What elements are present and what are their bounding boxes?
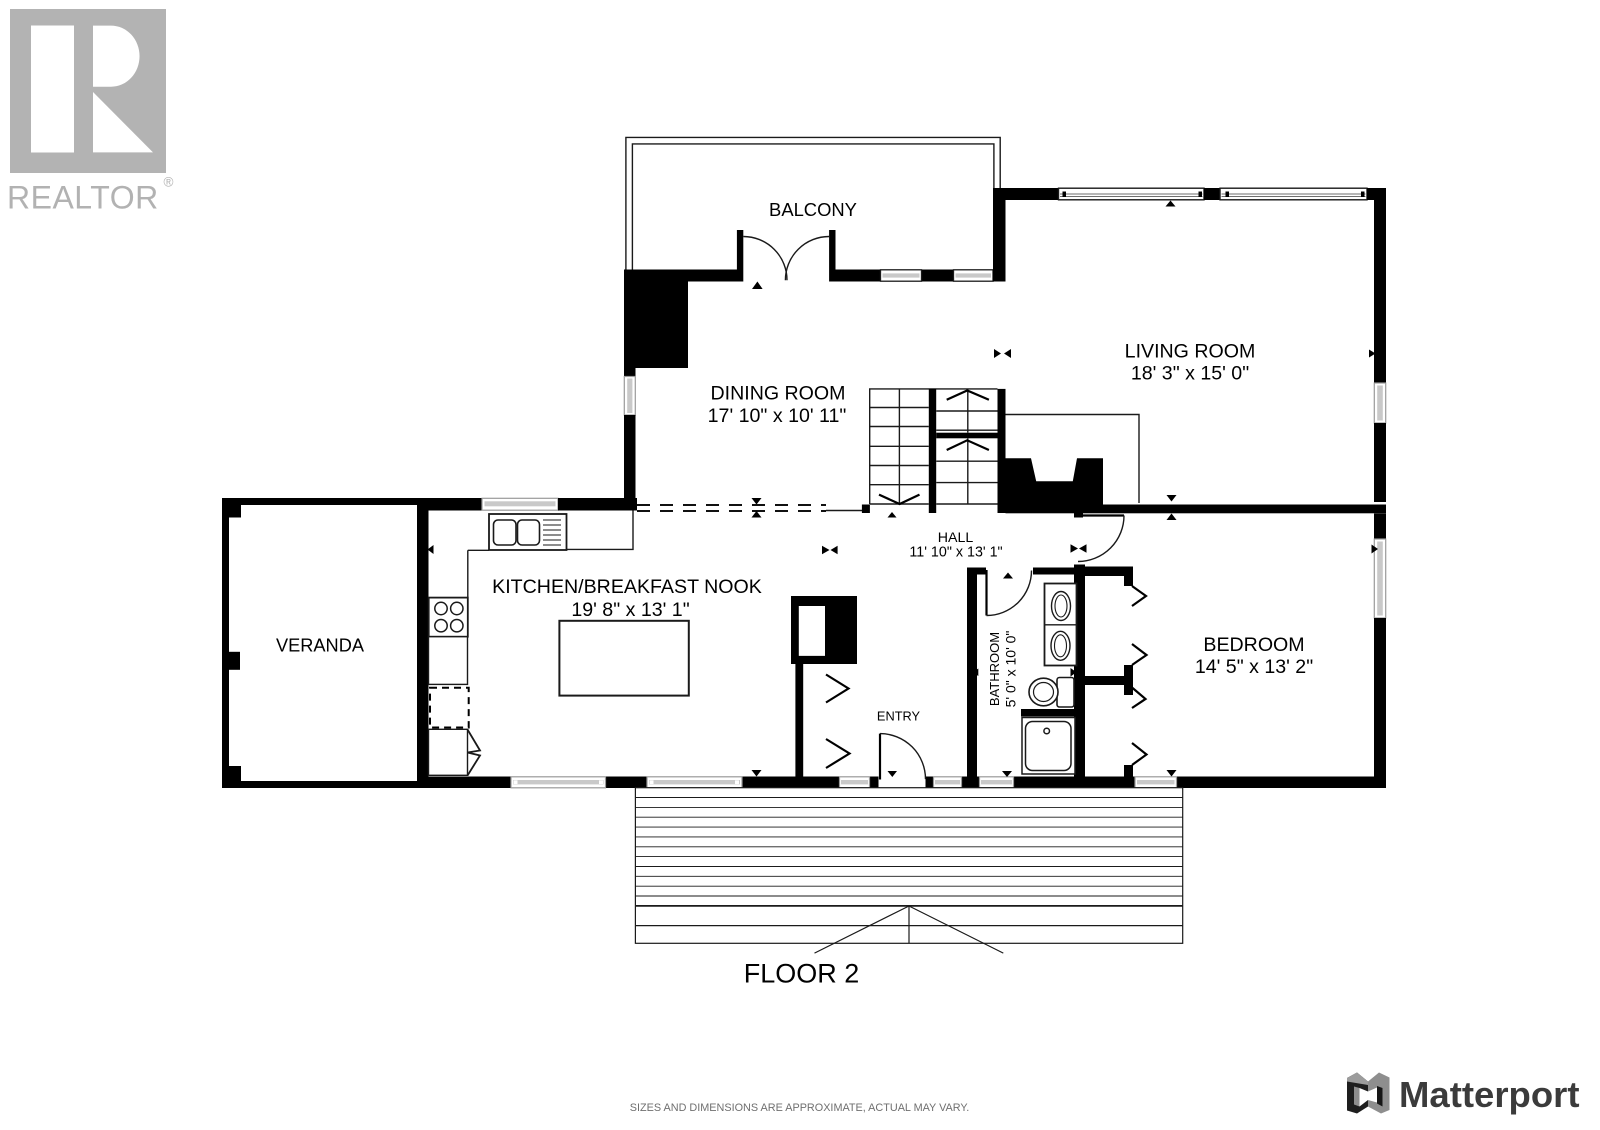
- svg-text:Matterport: Matterport: [1399, 1074, 1579, 1115]
- svg-text:SIZES AND DIMENSIONS ARE APPRO: SIZES AND DIMENSIONS ARE APPROXIMATE, AC…: [630, 1102, 969, 1114]
- svg-text:FLOOR 2: FLOOR 2: [744, 959, 860, 989]
- svg-text:BATHROOM: BATHROOM: [987, 632, 1002, 706]
- svg-text:5' 0" x 10' 0": 5' 0" x 10' 0": [1003, 631, 1019, 708]
- svg-text:11' 10" x 13' 1": 11' 10" x 13' 1": [909, 545, 1002, 561]
- svg-text:LIVING ROOM: LIVING ROOM: [1125, 341, 1256, 363]
- svg-text:17' 10" x 10' 11": 17' 10" x 10' 11": [708, 405, 847, 427]
- svg-text:®: ®: [164, 175, 174, 190]
- svg-text:14' 5" x 13' 2": 14' 5" x 13' 2": [1195, 656, 1313, 678]
- svg-text:DINING ROOM: DINING ROOM: [711, 383, 846, 405]
- svg-text:ENTRY: ENTRY: [877, 709, 921, 724]
- svg-text:KITCHEN/BREAKFAST NOOK: KITCHEN/BREAKFAST NOOK: [492, 576, 762, 598]
- svg-text:BEDROOM: BEDROOM: [1203, 634, 1304, 656]
- svg-text:18' 3" x 15' 0": 18' 3" x 15' 0": [1131, 363, 1249, 385]
- svg-text:REALTOR: REALTOR: [7, 180, 159, 216]
- svg-text:19' 8" x 13' 1": 19' 8" x 13' 1": [571, 599, 689, 621]
- svg-text:VERANDA: VERANDA: [276, 636, 365, 656]
- svg-text:BALCONY: BALCONY: [769, 199, 857, 220]
